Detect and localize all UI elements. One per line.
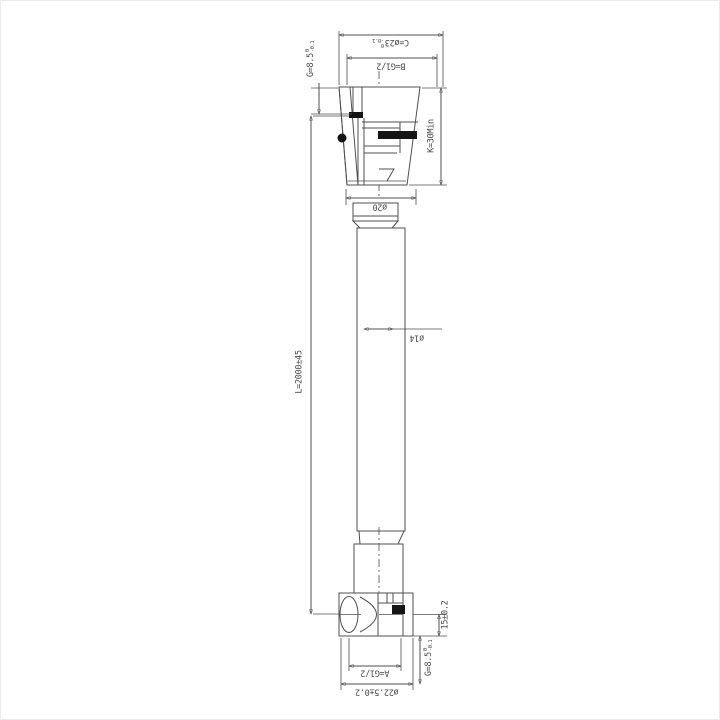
- dim-label-dia20: ø20: [373, 202, 387, 211]
- dimension-b: [347, 54, 437, 87]
- dim-label-k-text: K=30Min: [428, 119, 437, 153]
- dim-label-b: B=G1/2: [377, 61, 406, 70]
- dim-label-length: L=2000±45: [296, 350, 305, 393]
- dimension-dia22-5: [341, 638, 413, 690]
- dim-label-g-top-tolerance: 0-0.1: [306, 41, 316, 52]
- top-nut-fitting: [338, 71, 421, 199]
- dim-label-g-top: G=8.50-0.1: [306, 41, 316, 77]
- dim-label-dia14: ø14: [410, 333, 424, 342]
- dim-label-k: K=30Min: [428, 119, 437, 153]
- dim-label-g-bottom-text: G=8.5: [425, 652, 434, 676]
- dim-label-g-bottom: G=8.50-0.1: [424, 640, 434, 676]
- dim-label-dia22-5: ø22.5±0.2: [355, 687, 398, 696]
- dim-label-15: 15±0.2: [442, 601, 451, 630]
- dim-label-b-text: B=G1/2: [377, 61, 406, 70]
- dim-label-c: C=ø230-0.1: [373, 37, 409, 47]
- hose-body: [353, 203, 405, 593]
- drawing-linework: [1, 1, 719, 719]
- bottom-cone-fitting: [339, 593, 413, 636]
- dim-label-dia14-text: ø14: [410, 333, 424, 342]
- dim-label-c-text: C=ø23: [385, 38, 409, 47]
- dim-label-15-text: 15±0.2: [442, 601, 451, 630]
- dim-label-a: A=G1/2: [361, 668, 390, 677]
- dimension-a: [349, 638, 401, 671]
- dim-label-g-bottom-tolerance: 0-0.1: [424, 640, 434, 651]
- dim-label-length-text: L=2000±45: [296, 350, 305, 393]
- dimension-length: [311, 116, 349, 614]
- dim-label-g-top-text: G=8.5: [307, 53, 316, 77]
- technical-drawing-canvas: C=ø230-0.1 B=G1/2 G=8.50-0.1 K=30Min ø20…: [0, 0, 720, 720]
- dim-label-c-tolerance: 0-0.1: [373, 37, 384, 47]
- dim-label-dia20-text: ø20: [373, 202, 387, 211]
- dim-label-dia22-5-text: ø22.5±0.2: [355, 687, 398, 696]
- dim-label-a-text: A=G1/2: [361, 668, 390, 677]
